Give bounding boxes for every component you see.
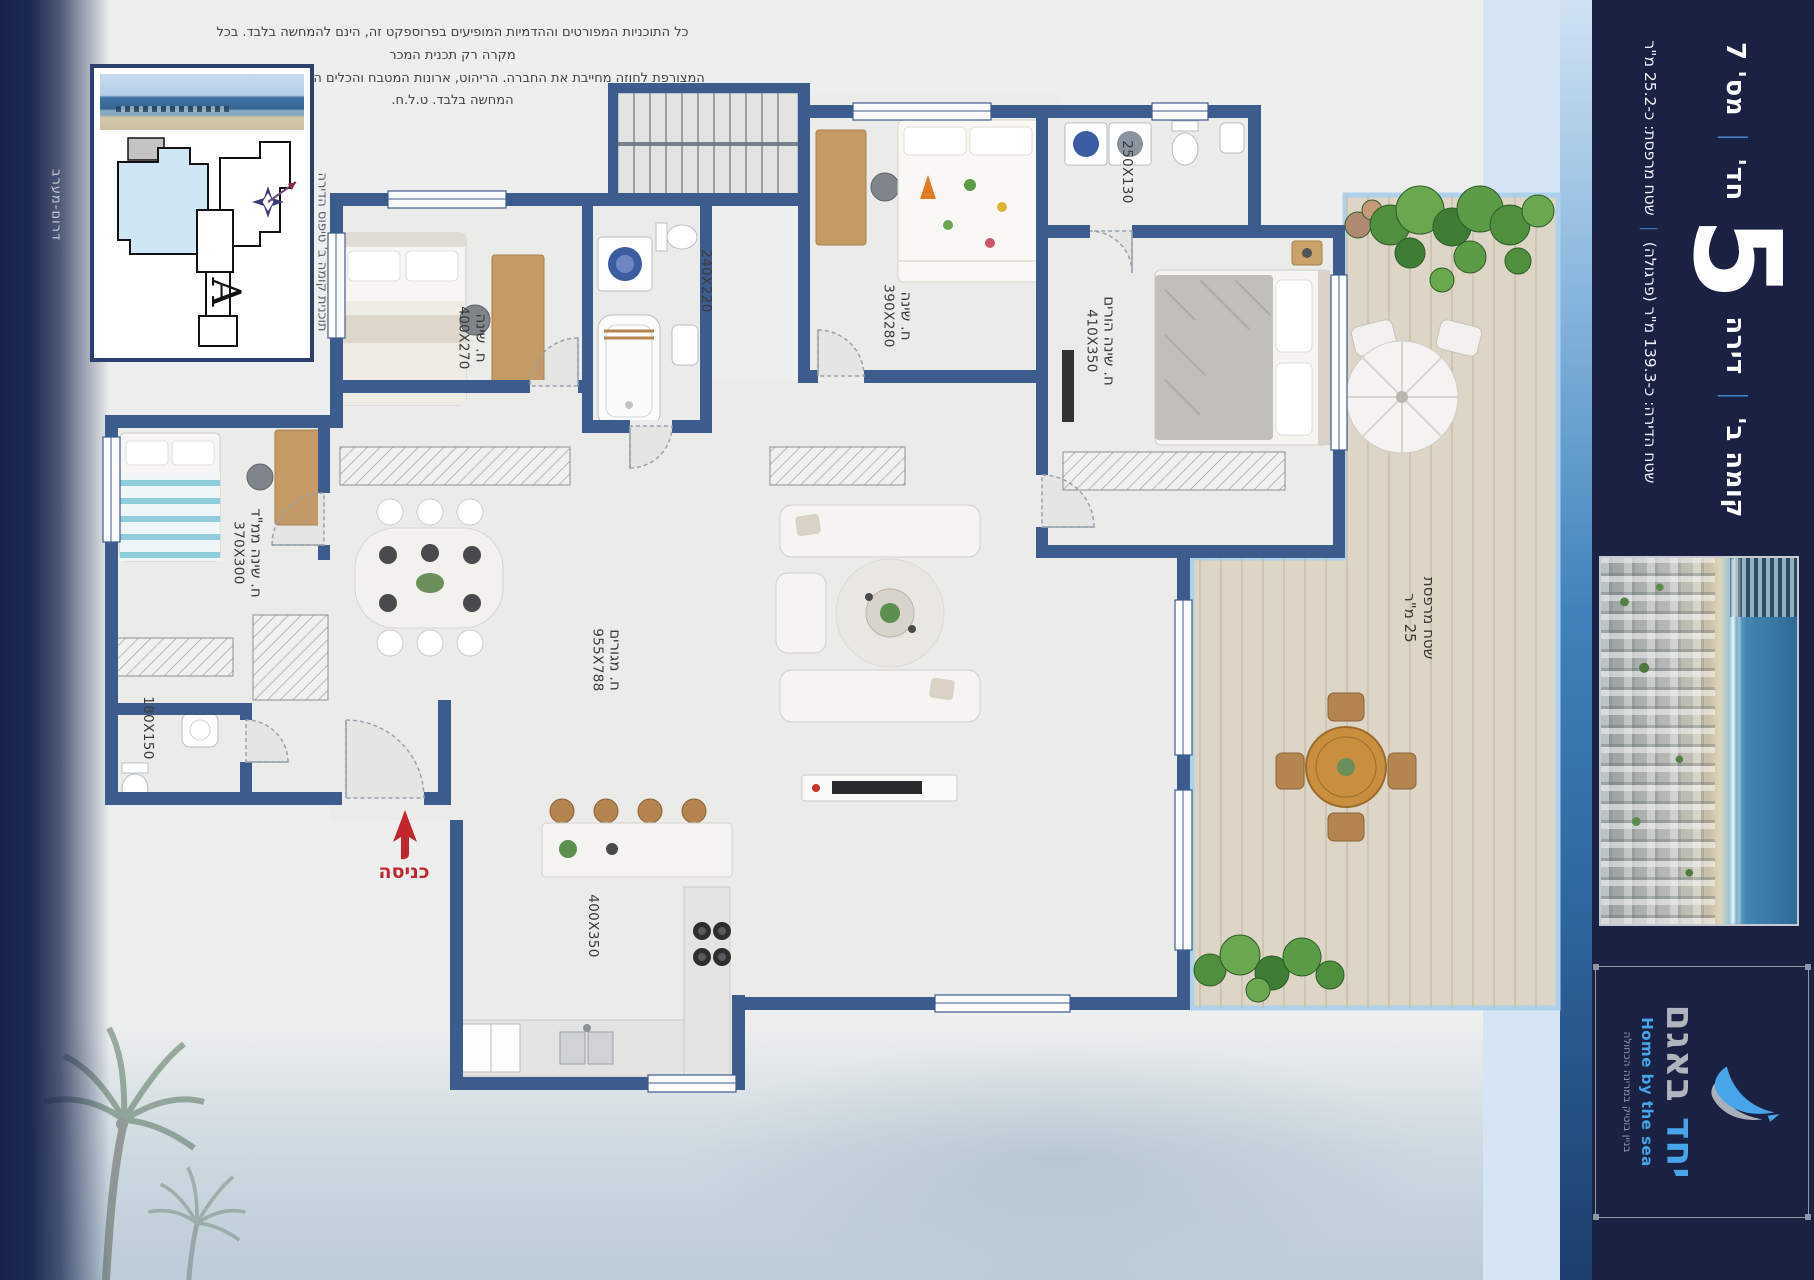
aerial-project-photo [1599, 556, 1799, 926]
apartment-word: דירה [1720, 316, 1750, 374]
areas-line: שטח הדירה: כ-139.3 מ"ר (פרגולה) | שטח מר… [1637, 42, 1663, 482]
apartment-title: קומה ב' | דירה 5 חד' | מס' 7 [1660, 40, 1810, 520]
room-label-living: ח. מגורים 955X788 [590, 628, 625, 692]
logo-name-first: יחד [1659, 1117, 1703, 1180]
room-label-bath1: 240X220 [698, 249, 714, 313]
logo-name: יחד באגם [1662, 1004, 1700, 1179]
logo-tagline-en: Home by the sea [1639, 1017, 1657, 1167]
bed-mamad [120, 433, 220, 561]
rooms-suffix: חד' [1720, 158, 1750, 201]
room-label-balcony: שטח מרפסת 25 מ"ר [1400, 577, 1438, 660]
separator: | [1640, 226, 1661, 232]
sail-icon [1705, 1058, 1783, 1126]
separator: | [1718, 391, 1753, 401]
floor-plan-drawing [90, 75, 1570, 1105]
orientation-label: דרום-מערב [49, 169, 64, 241]
room-label-bedroom1: ח. שינה 400X270 [456, 306, 491, 370]
developer-logo: יחד באגם Home by the sea בניין בוטיק במר… [1595, 966, 1809, 1218]
brochure-page: כל התוכניות המפורטים וההדמיות המופיעים ב… [0, 0, 1814, 1280]
chair-bedroom2 [871, 173, 899, 201]
logo-name-second: באגם [1659, 1004, 1703, 1102]
room-label-bath2: 180X150 [140, 696, 156, 760]
entrance-arrow-icon [390, 808, 420, 866]
room-label-mamad: ח. שינה ממ"ד 370X300 [231, 508, 266, 597]
rooms-count: 5 [1687, 217, 1783, 301]
chair-mamad [247, 464, 273, 490]
logo-frame: יחד באגם Home by the sea בניין בוטיק במר… [1595, 966, 1809, 1218]
room-label-parents: ח. שינה הורים 410X350 [1084, 296, 1119, 386]
bed-bedroom2 [898, 120, 1040, 282]
room-label-bedroom2: ח. שינה 390X280 [881, 284, 916, 348]
aerial-photo-art [1601, 558, 1797, 924]
disclaimer-line1: כל התוכניות המפורטים וההדמיות המופיעים ב… [200, 22, 705, 68]
palm-tree-silhouette-small [120, 1120, 270, 1280]
apartment-number: מס' 7 [1720, 42, 1750, 116]
room-label-service-bath: 250X130 [1119, 140, 1135, 204]
floor-text: קומה ב' [1720, 417, 1750, 518]
entrance-label: כניסה [369, 861, 439, 883]
logo-tagline-he: בניין בוטיק במרינה הכחולה [1622, 1032, 1634, 1153]
bed-bedroom1 [340, 233, 466, 405]
desk-bedroom2 [816, 130, 866, 245]
stairwell [618, 93, 798, 195]
balcony-area-text: שטח מרפסת: כ-25.2 מ"ר [1641, 41, 1659, 216]
separator: | [1718, 132, 1753, 142]
apartment-area-text: שטח הדירה: כ-139.3 מ"ר (פרגולה) [1641, 242, 1659, 484]
room-label-kitchen: 400X350 [585, 894, 601, 958]
